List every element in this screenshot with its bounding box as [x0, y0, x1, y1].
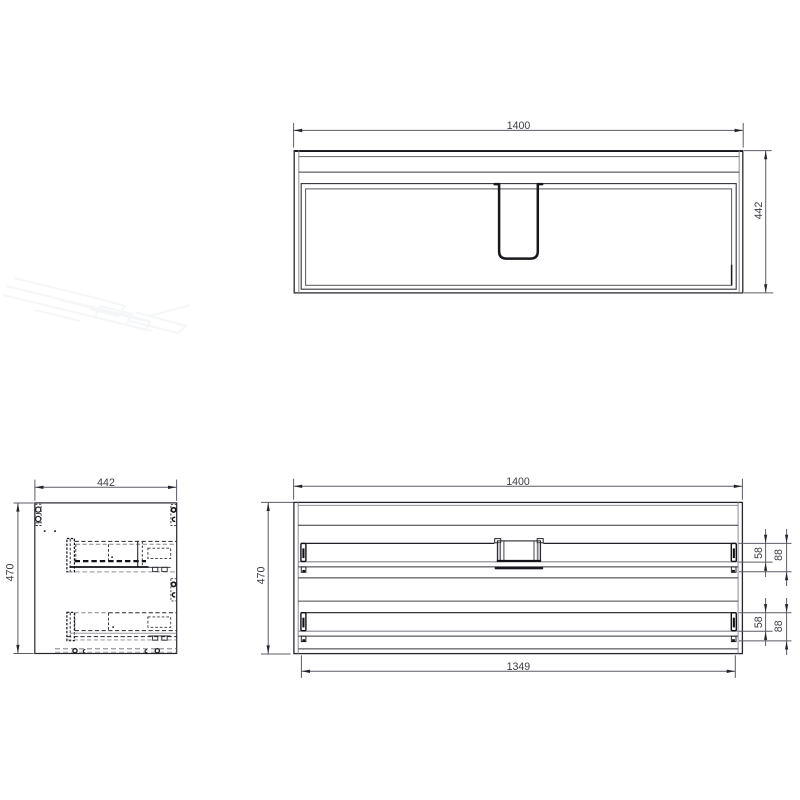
- svg-text:1400: 1400: [506, 476, 530, 488]
- svg-text:88: 88: [773, 549, 785, 561]
- svg-text:88: 88: [773, 620, 785, 632]
- svg-text:1349: 1349: [507, 661, 531, 673]
- svg-text:442: 442: [753, 202, 765, 220]
- svg-text:58: 58: [753, 616, 765, 628]
- svg-text:470: 470: [256, 567, 268, 585]
- svg-text:442: 442: [97, 477, 115, 489]
- svg-text:470: 470: [5, 564, 17, 582]
- svg-text:58: 58: [753, 547, 765, 559]
- svg-text:1400: 1400: [507, 120, 531, 132]
